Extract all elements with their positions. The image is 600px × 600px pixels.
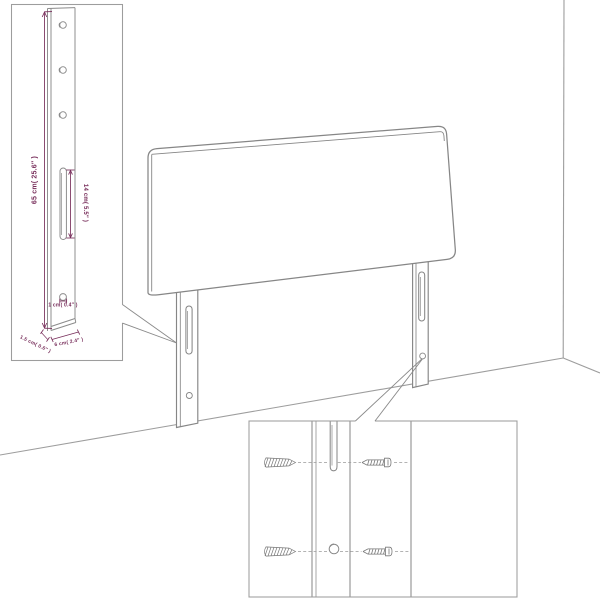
dimension-label-hole-diameter: 1 cm( 0.4″ ) bbox=[48, 304, 77, 309]
dimension-label-height: 65 cm( 25.6″ ) bbox=[32, 156, 39, 204]
mounting-inset bbox=[249, 421, 517, 597]
dimension-label-slot-height: 14 cm( 5.5″ ) bbox=[82, 184, 88, 222]
floor-line-right bbox=[563, 358, 600, 373]
headboard-assembly-diagram: 65 cm( 25.6″ ) 14 cm( 5.5″ ) 1 cm( 0.4″ … bbox=[0, 0, 600, 600]
right-leg-hole bbox=[420, 353, 426, 359]
headboard-panel bbox=[148, 126, 455, 295]
diagram-line-art bbox=[0, 0, 600, 600]
right-leg bbox=[413, 251, 429, 388]
callout-left bbox=[121, 305, 177, 344]
panel-outline bbox=[148, 126, 455, 295]
mounting-inset-box bbox=[249, 421, 517, 597]
left-leg bbox=[177, 285, 198, 428]
wall-corner-line bbox=[563, 0, 564, 358]
right-leg-outline bbox=[413, 251, 429, 388]
left-leg-hole bbox=[186, 393, 192, 399]
